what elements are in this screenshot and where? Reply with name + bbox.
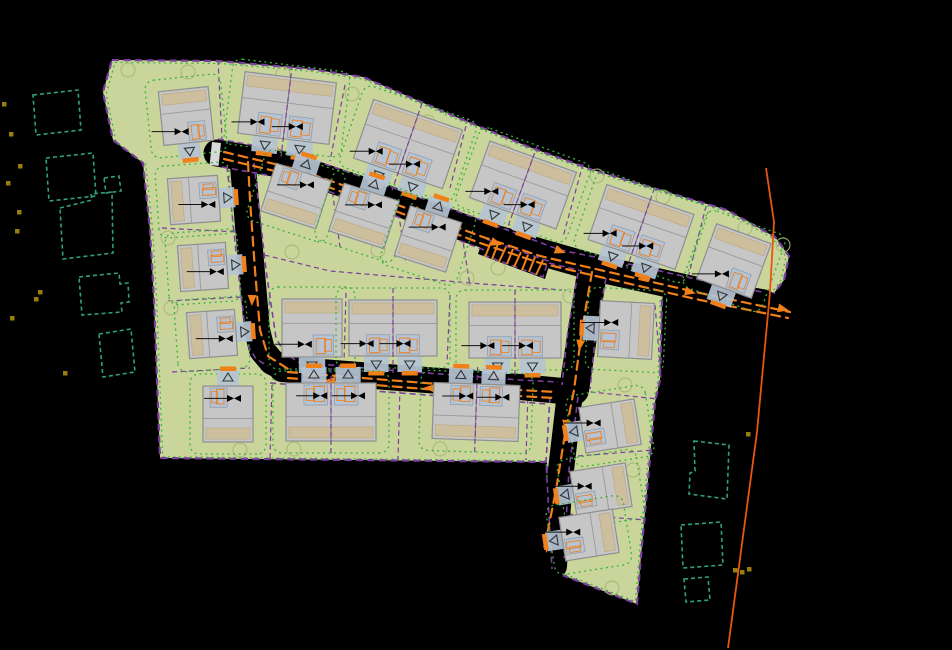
terrace [190, 315, 204, 356]
crossing-threshold [368, 371, 384, 376]
cad-viewport[interactable] [0, 0, 952, 650]
crossing-threshold [486, 365, 502, 370]
terrace [638, 306, 652, 357]
crossing-threshold [340, 364, 356, 369]
driveway-apron [481, 368, 506, 386]
driveway-apron [449, 367, 474, 385]
crossing-threshold [220, 367, 236, 372]
site-plan-drawing [0, 0, 952, 650]
garage [217, 316, 234, 333]
crossing-threshold [402, 371, 418, 376]
terrace [206, 428, 250, 439]
terrace [285, 302, 339, 313]
driveway-apron [582, 315, 600, 340]
crossing-threshold [306, 364, 322, 369]
crossing-threshold [453, 364, 469, 369]
terrace [171, 181, 185, 222]
garage [208, 249, 225, 266]
terrace [181, 248, 195, 289]
